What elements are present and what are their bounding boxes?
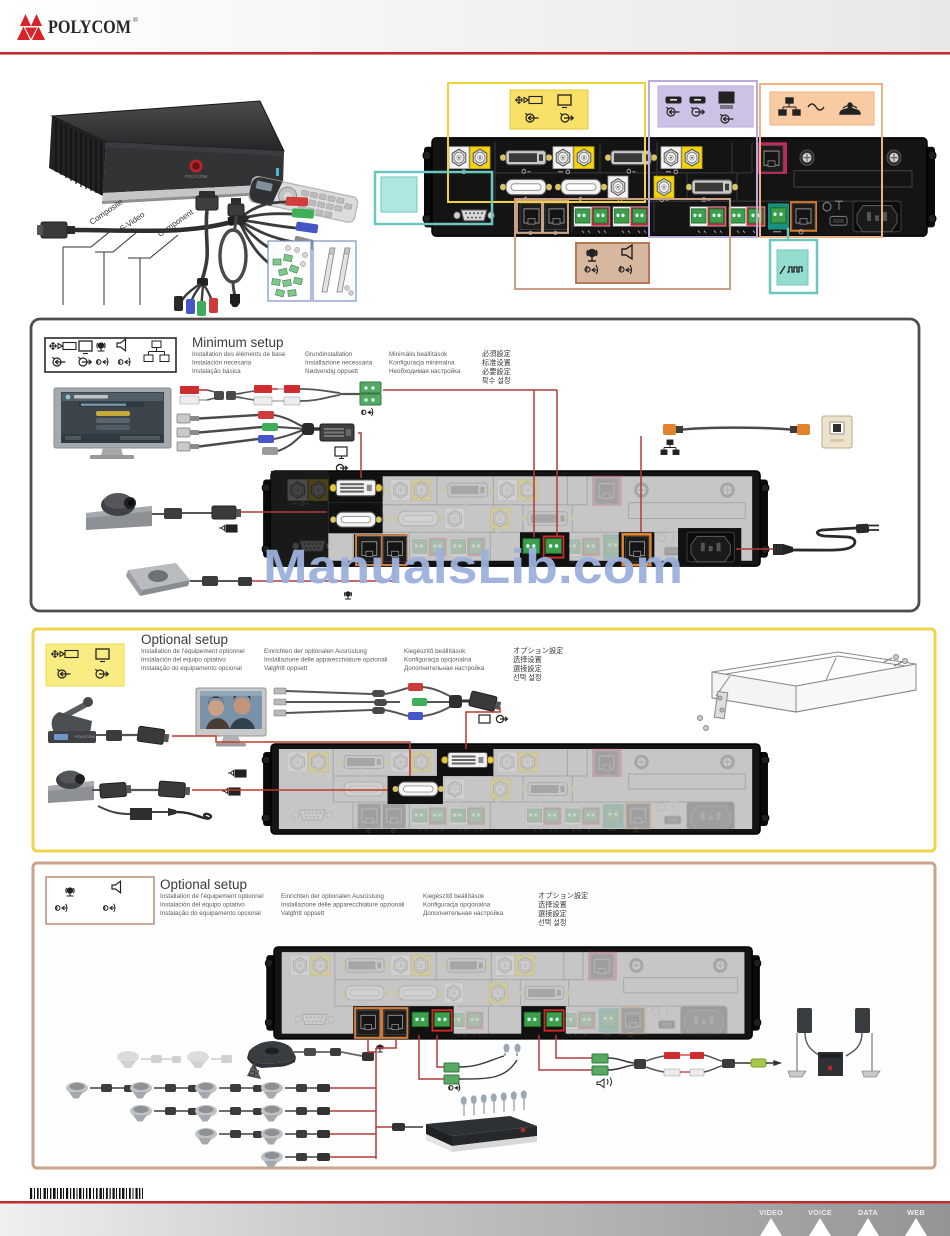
svg-text:选择设置: 选择设置	[513, 655, 542, 664]
svg-text:Optional setup: Optional setup	[160, 877, 247, 892]
svg-text:POLYCOM: POLYCOM	[75, 734, 95, 739]
svg-text:必須設定: 必須設定	[482, 349, 511, 358]
svg-text:Дополнительная настройка: Дополнительная настройка	[404, 664, 485, 672]
svg-text:Instalación necesaria: Instalación necesaria	[192, 360, 252, 367]
svg-text:必要設定: 必要設定	[482, 367, 511, 376]
svg-text:标准设置: 标准设置	[482, 358, 511, 367]
svg-text:Minimális beállítások: Minimális beállítások	[389, 351, 448, 358]
svg-text:Installation des éléments de b: Installation des éléments de base	[192, 351, 286, 358]
svg-text:Installazione delle apparecchi: Installazione delle apparecchiature opzi…	[264, 657, 388, 664]
svg-text:POLYCOM: POLYCOM	[48, 17, 131, 38]
svg-text:オプション設定: オプション設定	[513, 646, 563, 655]
svg-text:Valgfritt oppsett: Valgfritt oppsett	[281, 910, 325, 917]
svg-text:オプション設定: オプション設定	[538, 891, 588, 900]
svg-text:팤수 설정: 팤수 설정	[482, 376, 510, 385]
svg-text:選掕設定: 選掕設定	[513, 664, 542, 673]
svg-text:Дополнительная настройка: Дополнительная настройка	[423, 909, 504, 917]
svg-text:Installation de l’équipement o: Installation de l’équipement optionnel	[160, 893, 264, 900]
svg-text:Instalación del equipo optativ: Instalación del equipo optativo	[160, 902, 245, 909]
svg-text:WEB: WEB	[907, 1208, 925, 1217]
svg-text:Installazione delle apparecchi: Installazione delle apparecchiature opzi…	[281, 902, 405, 909]
svg-text:Instalação básica: Instalação básica	[192, 368, 241, 375]
svg-text:Installation de l’équipement o: Installation de l’équipement optionnel	[141, 648, 245, 655]
svg-text:VOICE: VOICE	[808, 1208, 832, 1217]
svg-text:选择设置: 选择设置	[538, 900, 567, 909]
svg-text:선택 설정: 선택 설정	[538, 918, 566, 927]
svg-text:Kiegészítő beállítások: Kiegészítő beállítások	[423, 893, 485, 900]
svg-text:Installazione necessaria: Installazione necessaria	[305, 360, 373, 367]
svg-text:Konfiguracja minimalna: Konfiguracja minimalna	[389, 360, 455, 367]
svg-text:VIDEO: VIDEO	[759, 1208, 783, 1217]
svg-text:Einrichten der optionalen Ausr: Einrichten der optionalen Ausrüstung	[264, 648, 367, 655]
svg-text:선택 설정: 선택 설정	[513, 673, 541, 682]
svg-text:Kiegészítő beállítások: Kiegészítő beállítások	[404, 648, 466, 655]
svg-text:DATA: DATA	[858, 1208, 878, 1217]
svg-text:Nødvendig oppsett: Nødvendig oppsett	[305, 368, 358, 375]
svg-text:Konfiguracja opcjonalna: Konfiguracja opcjonalna	[404, 657, 472, 664]
svg-text:Optional setup: Optional setup	[141, 632, 228, 647]
svg-text:Konfiguracja opcjonalna: Konfiguracja opcjonalna	[423, 902, 491, 909]
svg-text:®: ®	[133, 16, 138, 24]
svg-text:Valgfritt oppsett: Valgfritt oppsett	[264, 665, 308, 672]
svg-text:Minimum setup: Minimum setup	[192, 335, 284, 350]
svg-text:Instalação do equipamento opci: Instalação do equipamento opcional	[141, 665, 242, 672]
svg-text:Необходимая настройка: Необходимая настройка	[389, 367, 461, 375]
svg-text:Grundinstallation: Grundinstallation	[305, 351, 353, 358]
svg-text:Einrichten der optionalen Ausr: Einrichten der optionalen Ausrüstung	[281, 893, 384, 900]
svg-text:選掕設定: 選掕設定	[538, 909, 567, 918]
svg-text:Instalação do equipamento opci: Instalação do equipamento opcional	[160, 910, 261, 917]
svg-text:ManualsLib.com: ManualsLib.com	[263, 541, 683, 594]
svg-text:Instalación del equipo optativ: Instalación del equipo optativo	[141, 657, 226, 664]
svg-text:POLYCOM: POLYCOM	[185, 174, 207, 179]
